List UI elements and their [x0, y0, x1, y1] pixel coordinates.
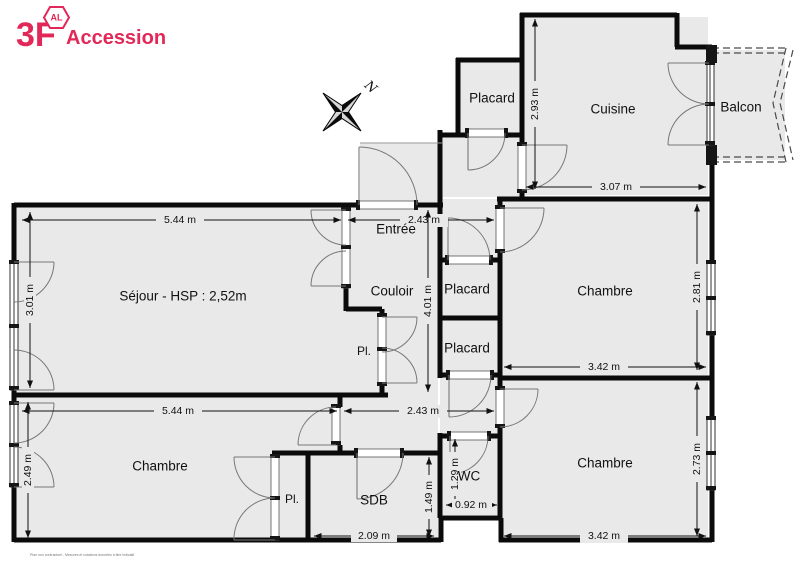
label-balcon: Balcon [720, 100, 761, 115]
label-placard-1: Placard [444, 282, 490, 297]
svg-text:2.93 m: 2.93 m [529, 88, 541, 120]
svg-text:1.49 m: 1.49 m [423, 481, 435, 513]
label-chambre-ne: Chambre [577, 284, 633, 299]
label-cuisine: Cuisine [590, 102, 635, 117]
label-placard-2: Placard [444, 341, 490, 356]
svg-text:3.42 m: 3.42 m [588, 530, 620, 542]
svg-text:2.73 m: 2.73 m [691, 443, 703, 475]
svg-text:3.01 m: 3.01 m [24, 284, 36, 316]
window-chambre-ne [706, 260, 716, 335]
svg-text:2.81 m: 2.81 m [691, 271, 703, 303]
svg-text:5.44 m: 5.44 m [162, 405, 194, 417]
dim-wc-width: 0.92 m [446, 499, 497, 511]
label-wc: WC [458, 469, 481, 484]
label-sdb: SDB [360, 493, 388, 508]
label-entree: Entrée [376, 222, 416, 237]
label-pl-couloir: Pl. [357, 344, 371, 358]
window-chambre-sw [9, 401, 19, 487]
floorplan-page: 5.44 m 3.01 m 2.43 m 4.01 m 2.93 m 3.07 … [0, 0, 800, 565]
label-chambre-se: Chambre [577, 456, 633, 471]
footer-disclaimer: Plan non contractuel - Mesures et cotati… [30, 553, 134, 557]
logo-3f-accession: 3F AL Accession [16, 7, 166, 54]
label-pl-chambre: Pl. [285, 492, 299, 506]
logo-badge-text: AL [51, 13, 63, 23]
label-sejour: Séjour - HSP : 2,52m [119, 289, 246, 304]
svg-text:4.01 m: 4.01 m [422, 285, 434, 317]
compass-rose: N [323, 77, 380, 131]
svg-text:2.49 m: 2.49 m [22, 454, 34, 486]
svg-text:3.42 m: 3.42 m [588, 361, 620, 373]
label-couloir: Couloir [371, 284, 414, 299]
svg-text:2.43 m: 2.43 m [407, 405, 439, 417]
svg-text:2.09 m: 2.09 m [358, 530, 390, 542]
svg-text:3.07 m: 3.07 m [600, 181, 632, 193]
window-sejour [9, 260, 19, 390]
svg-text:5.44 m: 5.44 m [164, 214, 196, 226]
logo-accession-text: Accession [66, 27, 166, 49]
svg-text:0.92 m: 0.92 m [455, 499, 487, 511]
window-chambre-se [706, 416, 716, 490]
window-balcony-door [705, 61, 715, 145]
compass-north-label: N [360, 77, 380, 97]
floorplan-drawing: 5.44 m 3.01 m 2.43 m 4.01 m 2.93 m 3.07 … [0, 0, 800, 565]
label-placard-haut: Placard [469, 91, 515, 106]
label-chambre-sw: Chambre [132, 459, 188, 474]
